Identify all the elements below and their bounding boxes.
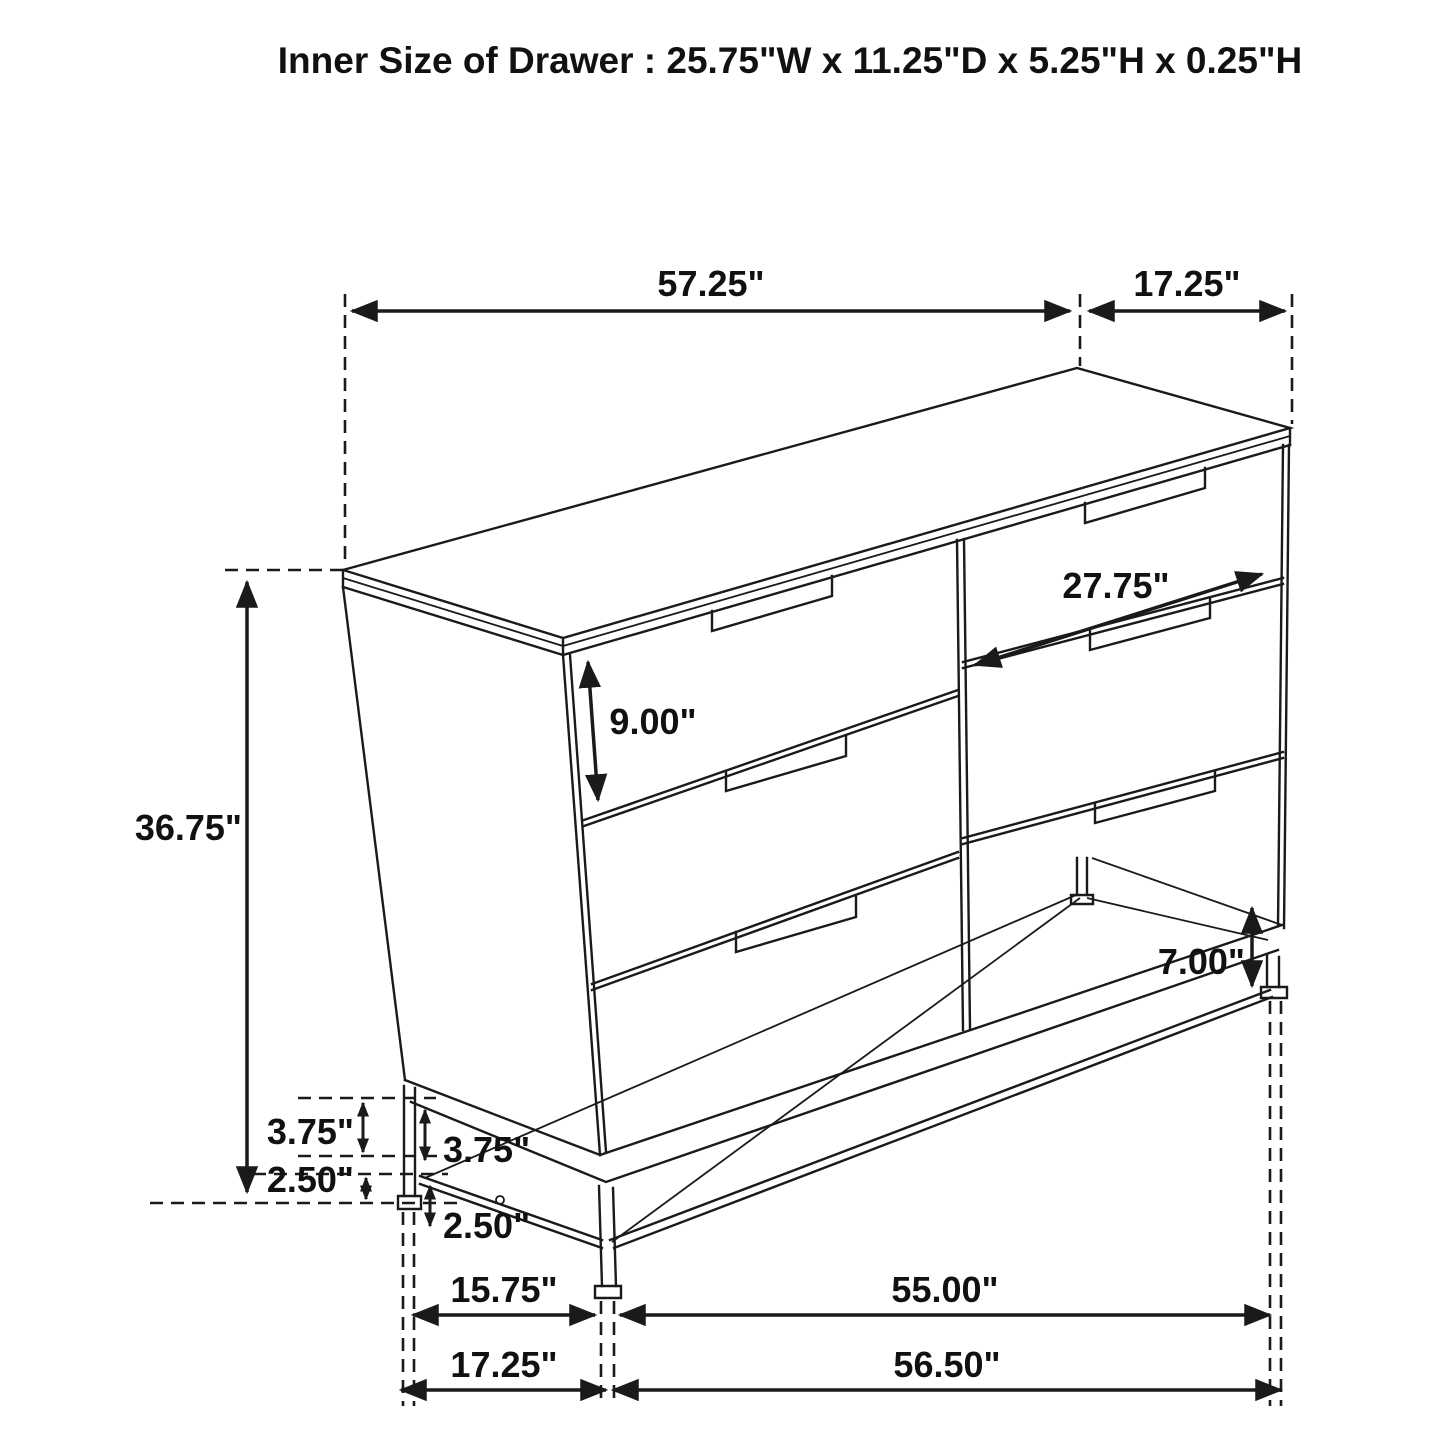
front-left-leg	[599, 1186, 616, 1286]
dim-foot-inner-label: 2.50"	[443, 1205, 530, 1246]
dim-rail-inner-label: 3.75"	[443, 1129, 530, 1170]
dim-base-side-inner-label: 15.75"	[450, 1269, 557, 1310]
dim-leg-clearance-label: 7.00"	[1158, 941, 1245, 982]
dim-top-width-label: 57.25"	[657, 263, 764, 304]
back-right-leg	[1077, 858, 1087, 895]
handle-right-1	[1085, 468, 1205, 523]
dimension-annotations: 57.25" 17.25" 9.00" 27.75" 36.75" 7.00" …	[135, 263, 1285, 1390]
furniture-dimension-diagram-page: Inner Size of Drawer : 25.75"W x 11.25"D…	[0, 0, 1445, 1445]
cross-brace	[612, 898, 1080, 1242]
left-back-edge	[343, 587, 405, 1080]
ext-back-left-foot	[403, 1212, 414, 1406]
dim-foot-outer-label: 2.50"	[267, 1159, 354, 1200]
extension-lines	[150, 294, 1292, 1406]
handle-left-1	[712, 576, 832, 631]
dim-base-front-outer-label: 56.50"	[893, 1344, 1000, 1385]
dim-rail-outer-label: 3.75"	[267, 1111, 354, 1152]
dim-base-front-inner-label: 55.00"	[891, 1269, 998, 1310]
center-divider	[957, 539, 970, 1030]
diagram-title: Inner Size of Drawer : 25.75"W x 11.25"D…	[278, 40, 1302, 81]
right-stretcher	[1087, 898, 1268, 940]
dim-drawer-width-label: 27.75"	[1062, 565, 1169, 606]
stretcher-screw-hole	[496, 1196, 504, 1204]
dresser-carcass	[343, 445, 1289, 1155]
dim-arrow-drawer-height	[588, 662, 598, 800]
front-right-leg	[1267, 955, 1279, 987]
drawer-lines	[584, 578, 1283, 990]
legs	[398, 858, 1287, 1298]
right-drawer-line-2	[963, 752, 1283, 844]
front-left-foot	[595, 1286, 621, 1298]
ext-front-right-foot	[1270, 1001, 1281, 1406]
dresser-dimension-diagram: Inner Size of Drawer : 25.75"W x 11.25"D…	[0, 0, 1445, 1445]
dim-base-side-outer-label: 17.25"	[450, 1344, 557, 1385]
dim-overall-height-label: 36.75"	[135, 807, 242, 848]
base-rail-bottom	[411, 950, 1278, 1182]
dim-drawer-height-label: 9.00"	[609, 701, 696, 742]
front-left-edge	[563, 655, 606, 1155]
base-frame	[411, 858, 1282, 1248]
dim-top-depth-label: 17.25"	[1133, 263, 1240, 304]
right-edge	[1278, 445, 1289, 928]
